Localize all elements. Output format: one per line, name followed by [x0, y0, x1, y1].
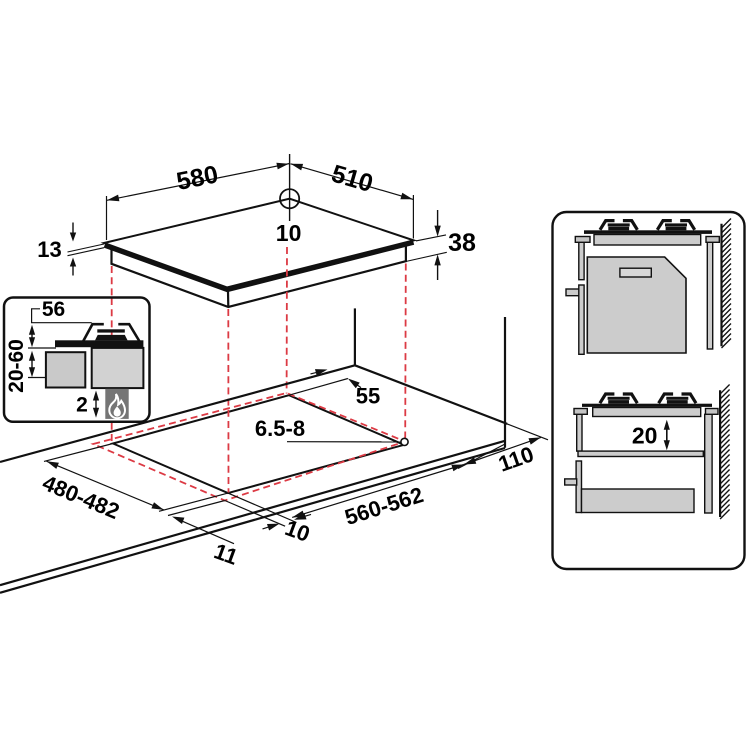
- svg-text:55: 55: [356, 384, 380, 409]
- svg-text:13: 13: [37, 237, 61, 262]
- svg-text:6.5-8: 6.5-8: [255, 416, 305, 441]
- svg-text:10: 10: [276, 220, 302, 246]
- svg-text:2: 2: [76, 394, 88, 417]
- svg-text:20-60: 20-60: [5, 339, 28, 393]
- svg-text:38: 38: [448, 229, 476, 257]
- svg-text:56: 56: [42, 298, 65, 321]
- svg-text:20: 20: [632, 423, 658, 449]
